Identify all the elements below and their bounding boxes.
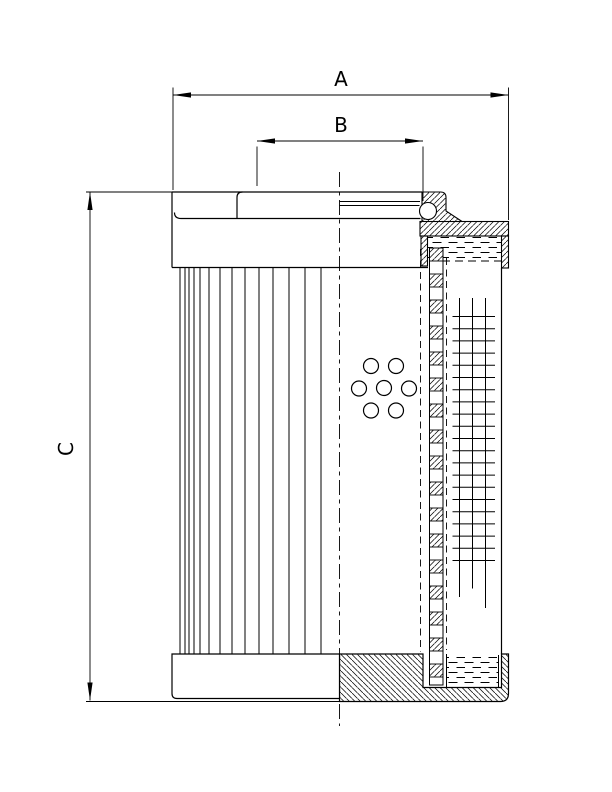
bottom-adhesive-fill [447, 655, 499, 688]
bottom-end-cap-external [172, 654, 340, 699]
o-ring-seal [420, 203, 437, 220]
flange-band [420, 222, 509, 237]
pleated-media-lines [180, 268, 321, 654]
top-cap-step-edge [175, 213, 421, 219]
perforation-holes [352, 359, 417, 419]
drawing-page: A B C [0, 0, 612, 792]
core-tube-perforation-segments [430, 248, 444, 677]
core-tube-section [421, 248, 447, 685]
flange-inner-wall [421, 236, 428, 266]
mesh-horizontal-wires [453, 317, 496, 561]
dim-c-arrow-top [87, 192, 92, 210]
top-cap-step-fillet [237, 192, 243, 219]
dimension-c [86, 192, 340, 702]
dim-a-label: A [334, 67, 348, 91]
dim-b-arrow-right [405, 138, 423, 143]
top-end-cap [172, 192, 428, 268]
dim-c-label: C [54, 442, 78, 456]
dim-c-arrow-bottom [87, 683, 92, 701]
flange-outer-lip [502, 236, 509, 268]
dimension-a [173, 88, 509, 221]
dim-b-arrow-left [257, 138, 275, 143]
dim-a-arrow-left [173, 92, 191, 97]
filter-element-technical-drawing: A B C [0, 0, 612, 792]
dim-a-arrow-right [491, 92, 509, 97]
dim-b-label: B [334, 113, 348, 137]
mesh-vertical-wires [460, 298, 486, 608]
filter-mesh-media [453, 268, 502, 654]
